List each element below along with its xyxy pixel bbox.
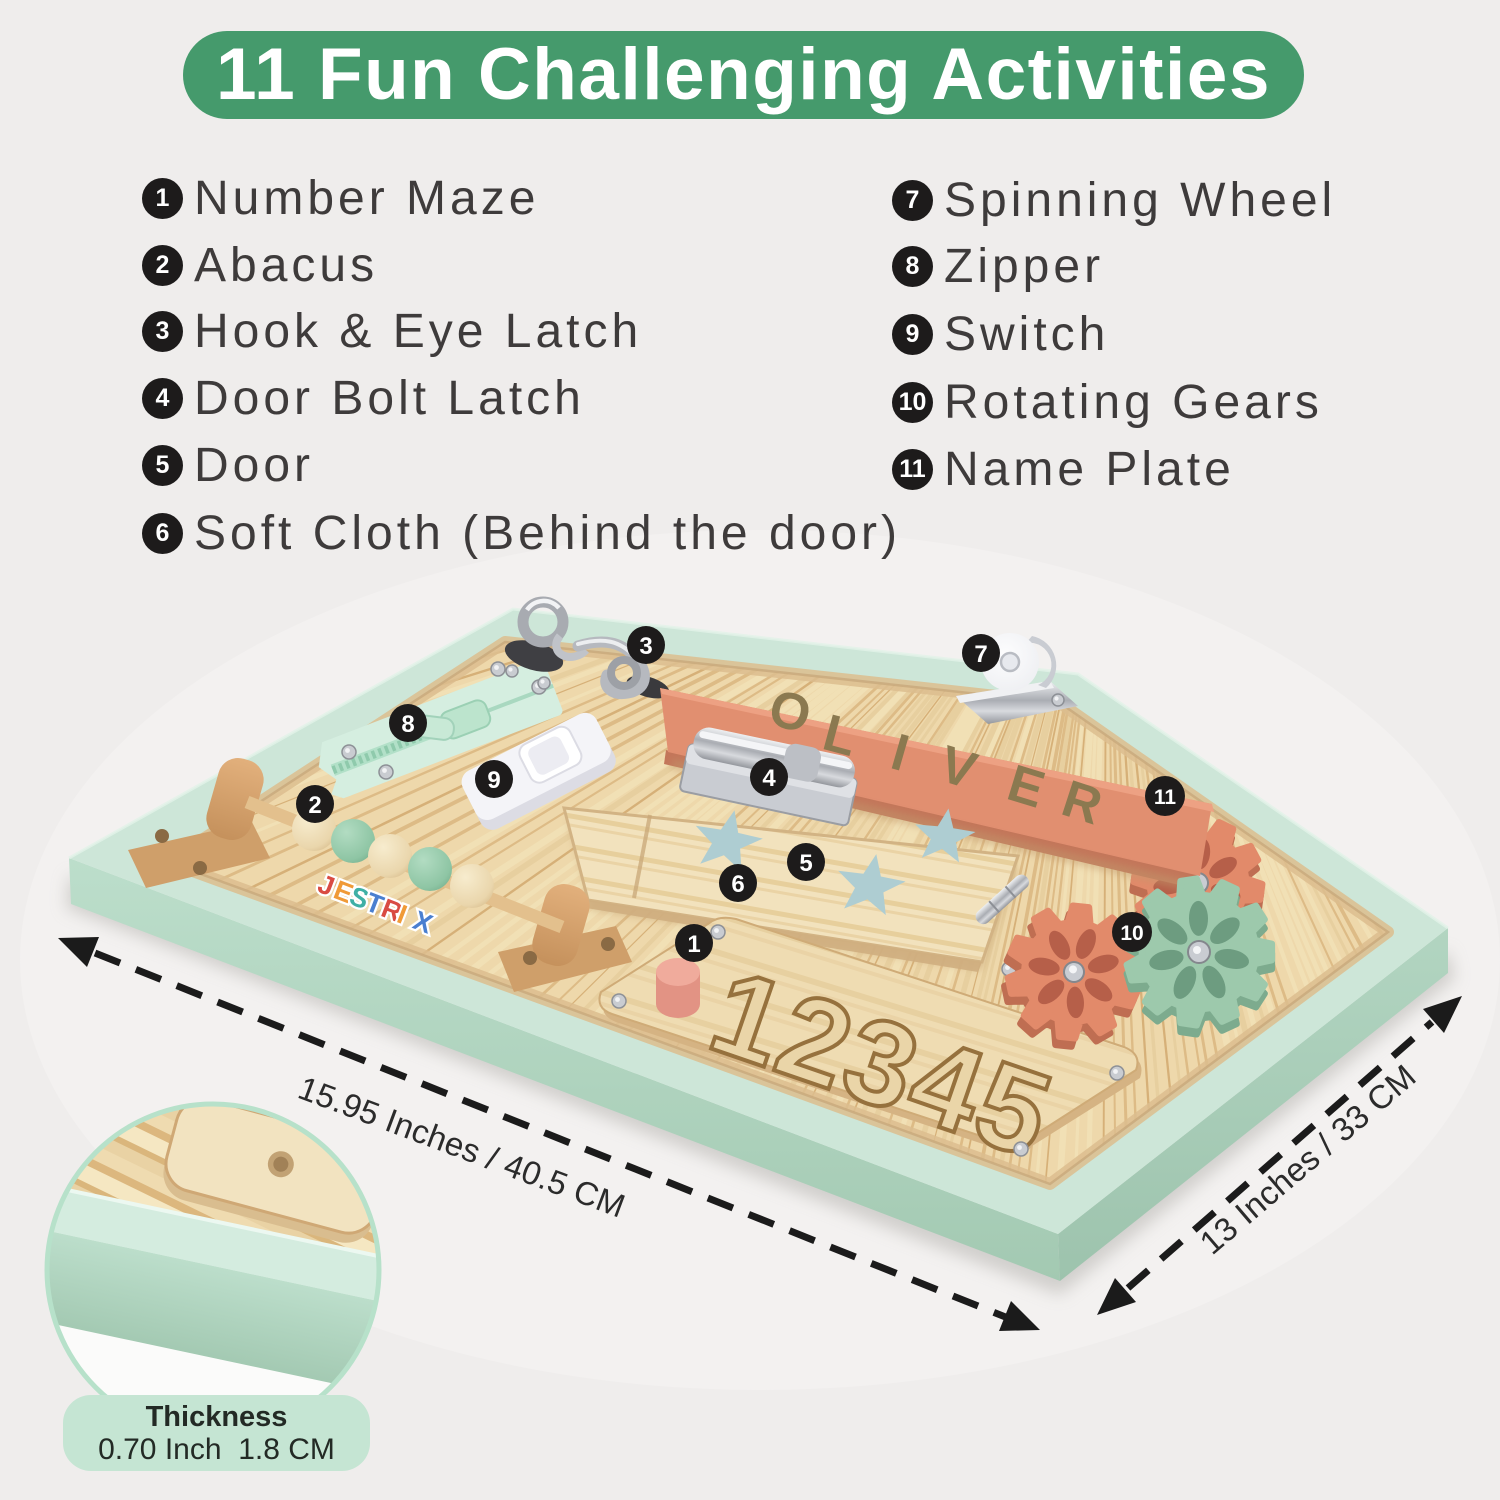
svg-text:4: 4 xyxy=(762,765,776,792)
svg-text:5: 5 xyxy=(799,850,812,877)
svg-text:9: 9 xyxy=(487,767,500,794)
svg-text:8: 8 xyxy=(401,711,414,738)
svg-text:2: 2 xyxy=(308,792,321,819)
svg-text:10: 10 xyxy=(1120,922,1143,945)
svg-text:11: 11 xyxy=(1154,786,1177,809)
svg-text:3: 3 xyxy=(639,633,652,660)
svg-text:6: 6 xyxy=(731,871,744,898)
svg-text:7: 7 xyxy=(974,641,987,668)
svg-text:1: 1 xyxy=(687,931,700,958)
